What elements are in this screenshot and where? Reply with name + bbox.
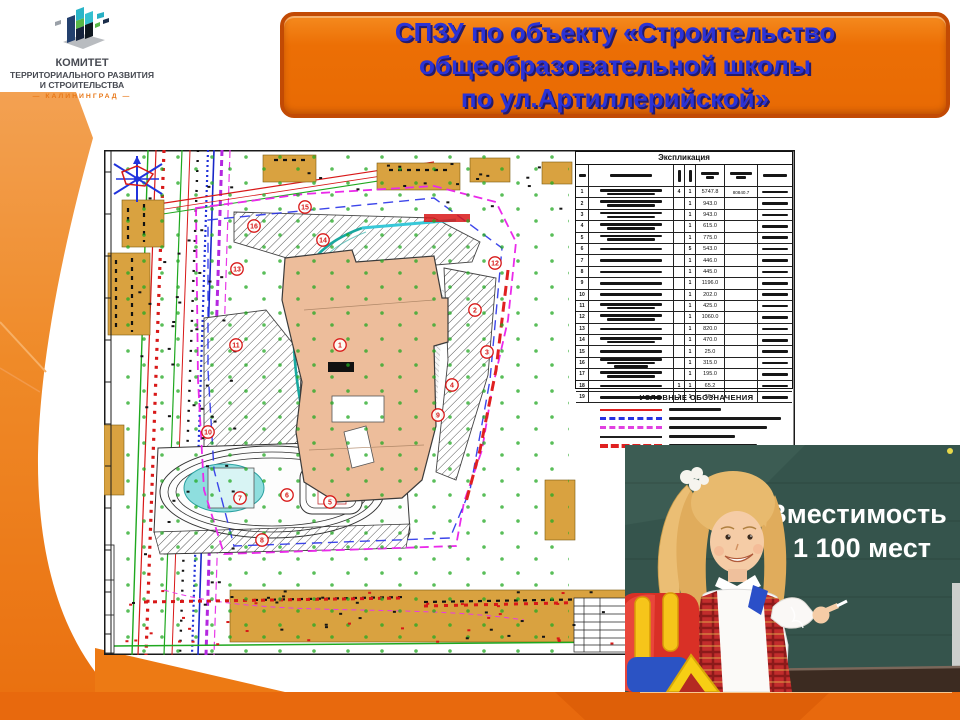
explication-row: 1211060.0 [576, 312, 792, 323]
svg-text:9: 9 [436, 413, 440, 420]
legend-item [600, 405, 793, 414]
svg-text:15: 15 [301, 205, 309, 212]
explication-row: 15125.0 [576, 346, 792, 357]
legend-item [600, 423, 793, 432]
banner-line-1: СПЗУ по объекту «Строительство [284, 16, 946, 49]
map-legend: УСЛОВНЫЕ ОБОЗНАЧЕНИЯ [600, 393, 793, 450]
explication-rows: 1415747.880840.721943.031943.041615.0517… [576, 187, 792, 403]
svg-text:10: 10 [204, 430, 212, 437]
explication-row: 81445.0 [576, 267, 792, 278]
legend-item [600, 432, 793, 441]
title-banner: СПЗУ по объекту «Строительство общеобраз… [280, 12, 950, 118]
banner-line-2: общеобразовательной школы [284, 49, 946, 82]
legend-item [600, 414, 793, 423]
legend-title: УСЛОВНЫЕ ОБОЗНАЧЕНИЯ [600, 393, 793, 402]
svg-text:4: 4 [450, 383, 454, 390]
explication-row: 41615.0 [576, 221, 792, 232]
explication-row: 111425.0 [576, 301, 792, 312]
explication-header [576, 165, 792, 187]
svg-text:6: 6 [285, 493, 289, 500]
svg-text:8: 8 [260, 538, 264, 545]
explication-row: 51775.0 [576, 233, 792, 244]
svg-text:14: 14 [319, 238, 327, 245]
explication-row: 31943.0 [576, 210, 792, 221]
banner-line-3: по ул.Артиллерийской» [284, 82, 946, 115]
explication-row: 141470.0 [576, 335, 792, 346]
explication-table: Экспликация 1415747.880840.721943.031943… [575, 151, 793, 389]
explication-row: 65543.0 [576, 244, 792, 255]
logo-title: КОМИТЕТ [2, 57, 162, 70]
explication-row: 911196.0 [576, 278, 792, 289]
committee-logo-icon [47, 2, 117, 52]
committee-logo: КОМИТЕТ ТЕРРИТОРИАЛЬНОГО РАЗВИТИЯ И СТРО… [2, 2, 162, 100]
explication-row: 161315.0 [576, 358, 792, 369]
explication-row: 71446.0 [576, 255, 792, 266]
explication-row: 101202.0 [576, 290, 792, 301]
svg-text:7: 7 [238, 496, 242, 503]
logo-subtitle-2: И СТРОИТЕЛЬСТВА [2, 80, 162, 90]
explication-row: 181165.2 [576, 381, 792, 392]
legend-items [600, 405, 793, 450]
schoolgirl-photo: Вместимость 1 100 мест [625, 445, 960, 692]
title-block [574, 598, 626, 652]
svg-text:13: 13 [233, 267, 241, 274]
explication-row: 1415747.880840.7 [576, 187, 792, 198]
logo-subtitle-1: ТЕРРИТОРИАЛЬНОГО РАЗВИТИЯ [2, 70, 162, 80]
svg-text:11: 11 [232, 343, 240, 350]
capacity-caption-line-1: Вместимость [767, 499, 947, 529]
logo-city: — КАЛИНИНГРАД — [2, 93, 162, 100]
svg-text:2: 2 [473, 308, 477, 315]
explication-title: Экспликация [576, 152, 792, 165]
pin-icon [947, 448, 953, 454]
explication-row: 171195.0 [576, 369, 792, 380]
svg-text:5: 5 [328, 500, 332, 507]
explication-row: 21943.0 [576, 198, 792, 209]
svg-text:3: 3 [485, 350, 489, 357]
capacity-caption-line-2: 1 100 мест [793, 533, 931, 563]
svg-text:1: 1 [338, 343, 342, 350]
svg-text:16: 16 [250, 224, 258, 231]
explication-row: 131820.0 [576, 324, 792, 335]
slide: КОМИТЕТ ТЕРРИТОРИАЛЬНОГО РАЗВИТИЯ И СТРО… [0, 0, 960, 720]
svg-text:12: 12 [491, 261, 499, 268]
